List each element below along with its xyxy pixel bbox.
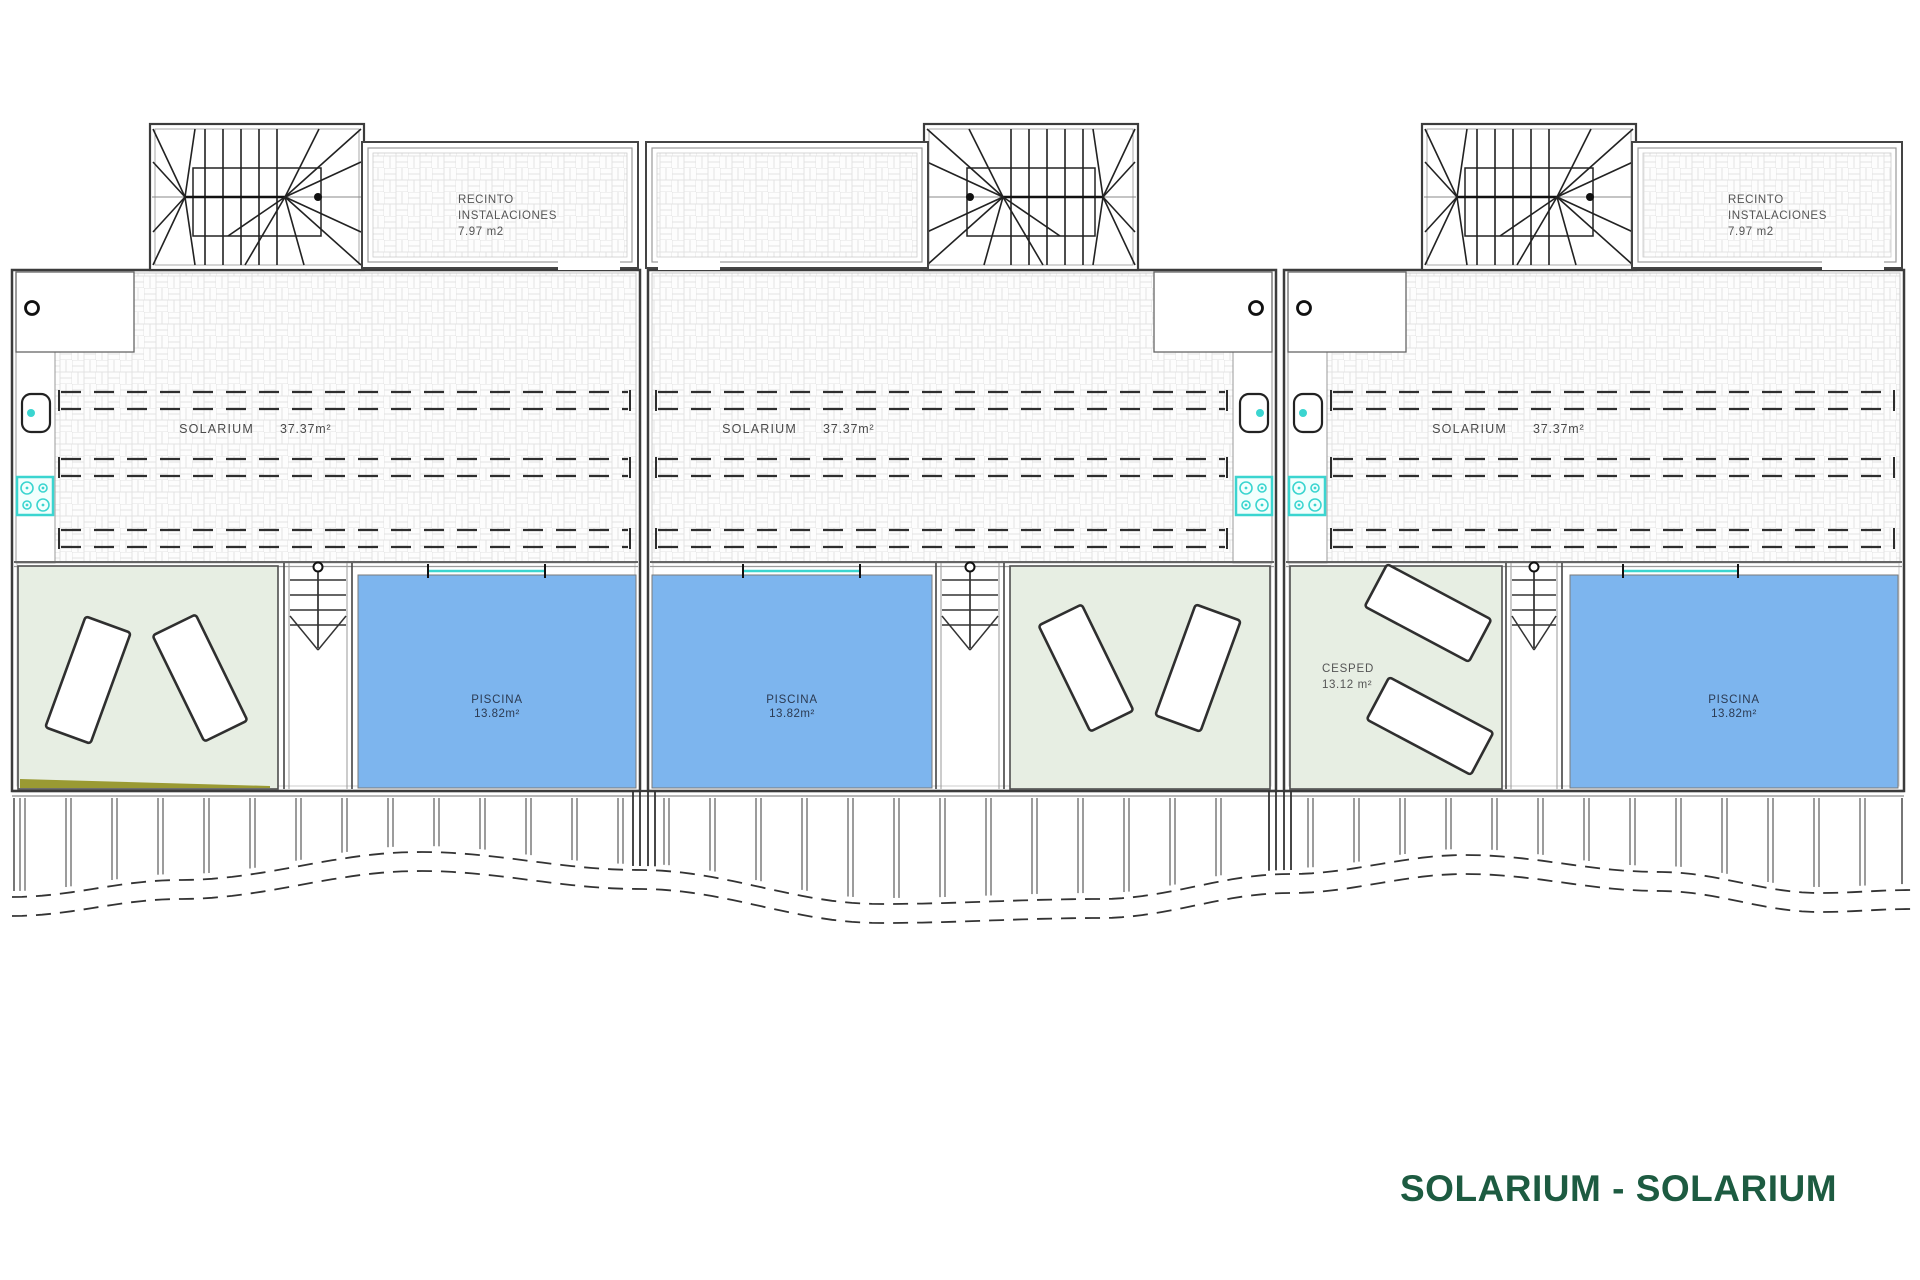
unit-3: SOLARIUM37.37m²RECINTOINSTALACIONES7.97 …: [1284, 124, 1904, 791]
svg-text:INSTALACIONES: INSTALACIONES: [458, 210, 557, 222]
drain-icon: [26, 302, 39, 315]
svg-text:7.97 m2: 7.97 m2: [458, 226, 504, 238]
deck: [12, 791, 1912, 923]
solarium-tiles: [652, 273, 1233, 563]
svg-text:RECINTO: RECINTO: [458, 194, 514, 206]
svg-text:PISCINA: PISCINA: [471, 694, 523, 706]
svg-text:13.82m²: 13.82m²: [474, 708, 520, 720]
pool: PISCINA13.82m²: [358, 564, 636, 788]
svg-text:37.37m²: 37.37m²: [280, 422, 331, 436]
pool: PISCINA13.82m²: [652, 564, 932, 788]
svg-text:INSTALACIONES: INSTALACIONES: [1728, 210, 1827, 222]
svg-text:7.97 m2: 7.97 m2: [1728, 226, 1774, 238]
svg-text:RECINTO: RECINTO: [1728, 194, 1784, 206]
unit-2: SOLARIUM37.37m²PISCINA13.82m²: [646, 124, 1276, 791]
pool: PISCINA13.82m²: [1570, 564, 1898, 788]
lawn: CESPED13.12 m²: [1290, 564, 1502, 789]
svg-text:37.37m²: 37.37m²: [823, 422, 874, 436]
drain-icon: [1250, 302, 1263, 315]
recinto-box: RECINTOINSTALACIONES7.97 m2: [362, 142, 638, 270]
solarium-tiles: [1327, 273, 1900, 563]
stair-enclosure: [150, 124, 364, 270]
stair-enclosure: [1422, 124, 1636, 270]
floor-plan-drawing: SOLARIUM37.37m²RECINTOINSTALACIONES7.97 …: [0, 0, 1920, 1280]
recinto-box: RECINTOINSTALACIONES7.97 m2: [1632, 142, 1902, 270]
drain-icon: [1298, 302, 1311, 315]
svg-text:PISCINA: PISCINA: [766, 694, 818, 706]
lawn: [1010, 566, 1270, 789]
unit-1: SOLARIUM37.37m²RECINTOINSTALACIONES7.97 …: [12, 124, 640, 791]
svg-text:PISCINA: PISCINA: [1708, 694, 1760, 706]
wave-break-line: [12, 852, 1912, 904]
svg-text:37.37m²: 37.37m²: [1533, 422, 1584, 436]
plan-title: SOLARIUM - SOLARIUM: [1400, 1168, 1800, 1210]
svg-text:SOLARIUM: SOLARIUM: [179, 422, 254, 436]
lawn: [18, 566, 278, 789]
svg-text:13.82m²: 13.82m²: [1711, 708, 1757, 720]
solarium-tiles: [55, 273, 636, 563]
stair-enclosure: [924, 124, 1138, 270]
sink-icon: [22, 394, 50, 432]
svg-text:CESPED: CESPED: [1322, 663, 1374, 675]
floor-plan-page: SOLARIUM37.37m²RECINTOINSTALACIONES7.97 …: [0, 0, 1920, 1280]
svg-text:SOLARIUM: SOLARIUM: [1432, 422, 1507, 436]
svg-text:SOLARIUM: SOLARIUM: [722, 422, 797, 436]
wave-break-line: [12, 871, 1912, 923]
svg-text:13.12 m²: 13.12 m²: [1322, 679, 1372, 691]
recinto-box: [646, 142, 928, 270]
svg-text:13.82m²: 13.82m²: [769, 708, 815, 720]
sink-icon: [1294, 394, 1322, 432]
